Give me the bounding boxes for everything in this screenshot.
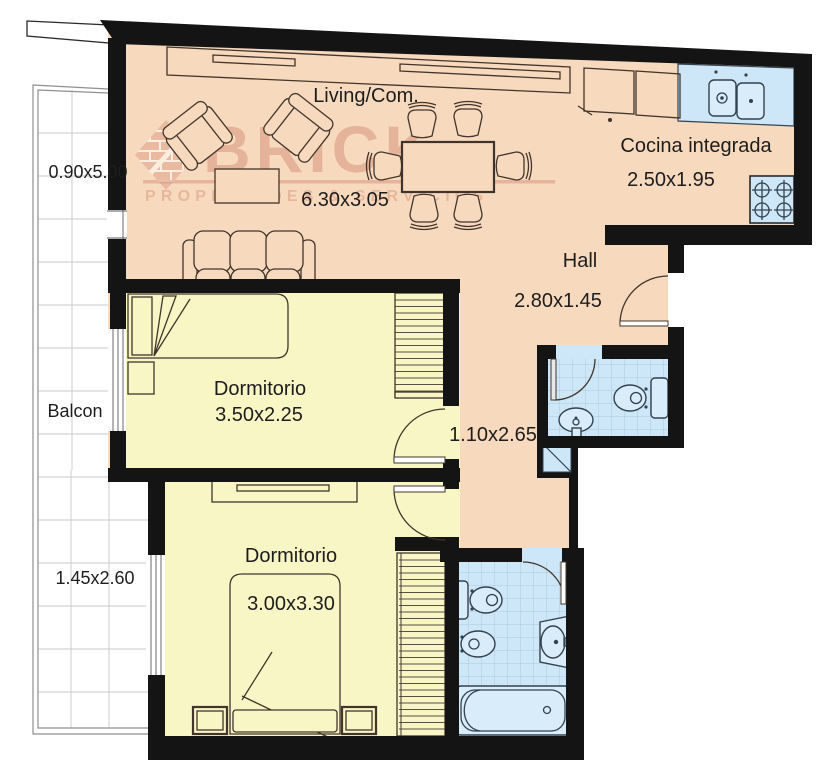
wardrobe	[395, 293, 447, 398]
floor-plan: BRICK PROPIEDADES & SERVICIOS	[0, 0, 833, 768]
floor-plan-page: BRICK PROPIEDADES & SERVICIOS	[0, 0, 833, 768]
entrance-opening	[668, 273, 684, 327]
balcony-dims-upper: 0.90x5.00	[48, 162, 127, 182]
bedroom2-window	[146, 555, 165, 675]
coffee-table	[215, 169, 279, 203]
hall-dims: 2.80x1.45	[514, 290, 602, 312]
nightstand	[342, 707, 376, 734]
bedroom2-label: Dormitorio	[245, 545, 337, 567]
corridor-dims: 1.10x2.65	[449, 424, 537, 446]
balcony-door-opening	[107, 210, 127, 239]
bidet	[460, 631, 495, 657]
stove	[750, 176, 794, 223]
balcony-dims-lower: 1.45x2.60	[55, 568, 134, 588]
nightstand	[193, 707, 227, 734]
single-bed	[128, 294, 288, 358]
dresser	[212, 481, 357, 502]
balcony-label: Balcon	[47, 401, 102, 421]
wardrobe	[397, 553, 445, 736]
living-dims: 6.30x3.05	[301, 189, 389, 211]
living-label: Living/Com.	[313, 85, 419, 107]
hall-label: Hall	[563, 250, 597, 272]
bedroom1-window	[108, 329, 126, 431]
bedroom1-label: Dormitorio	[214, 378, 306, 400]
kitchen-label: Cocina integrada	[620, 135, 772, 157]
bedroom2-dims: 3.00x3.30	[247, 593, 335, 615]
roof-ledge	[27, 21, 109, 43]
bedroom1-dims: 3.50x2.25	[215, 404, 303, 426]
kitchen-dims: 2.50x1.95	[627, 169, 715, 191]
nightstand	[128, 362, 154, 394]
bathtub	[456, 686, 570, 735]
dining-table	[402, 142, 494, 192]
